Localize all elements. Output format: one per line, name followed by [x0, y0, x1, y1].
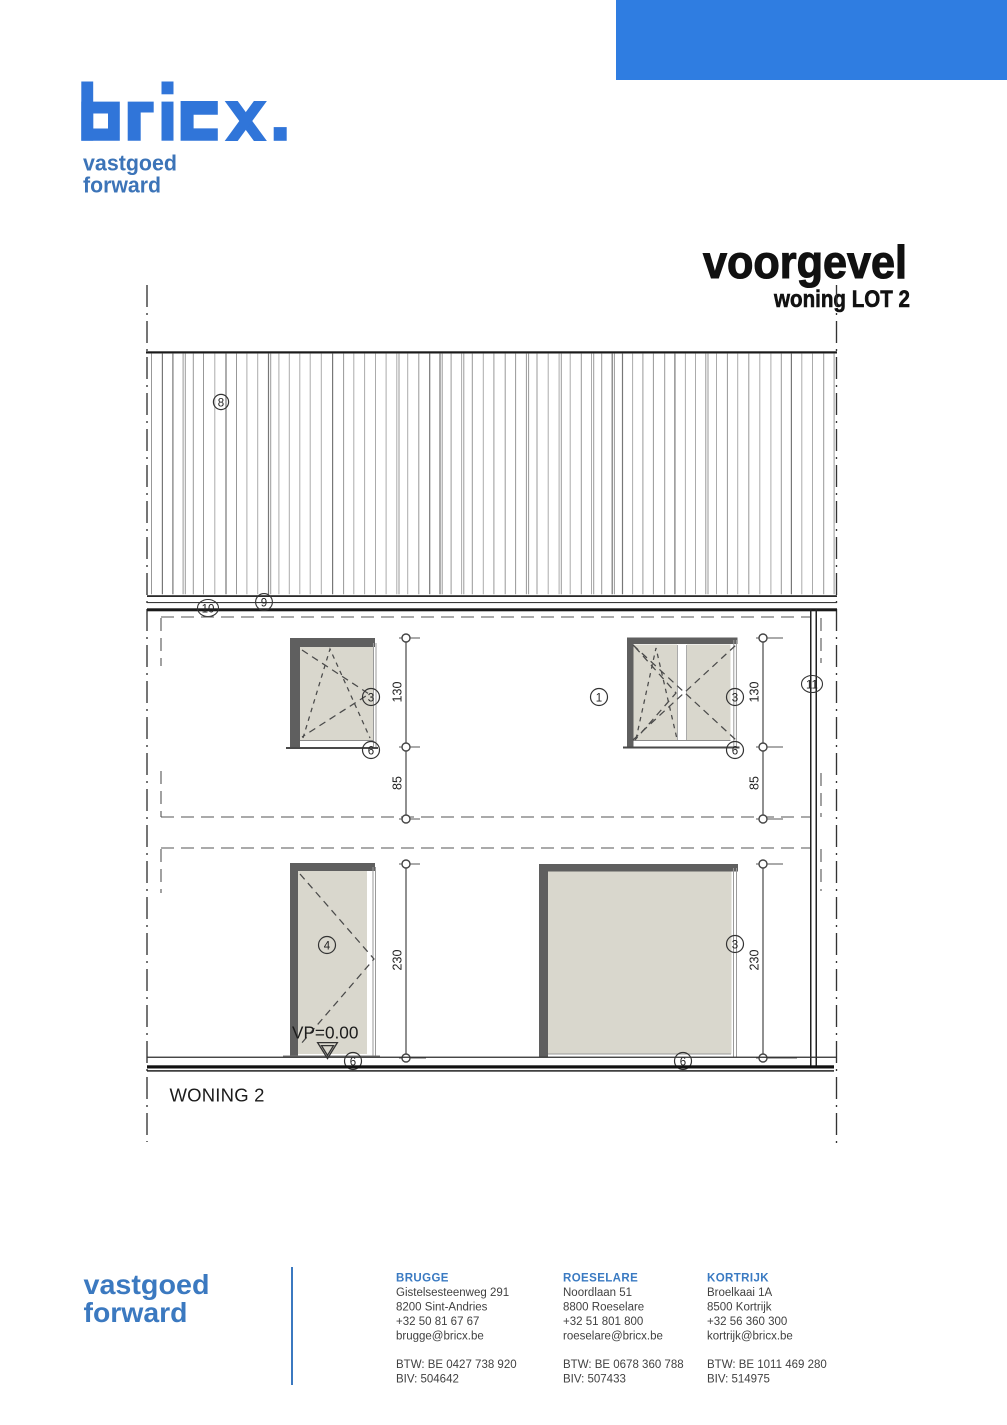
svg-text:Noordlaan 51: Noordlaan 51: [563, 1287, 632, 1299]
svg-text:+32 51 801 800: +32 51 801 800: [563, 1316, 643, 1328]
svg-text:roeselare@bricx.be: roeselare@bricx.be: [563, 1331, 663, 1343]
svg-text:ROESELARE: ROESELARE: [563, 1273, 638, 1285]
svg-text:230: 230: [748, 950, 762, 971]
svg-text:8: 8: [218, 398, 224, 410]
svg-text:4: 4: [324, 941, 331, 953]
svg-text:woning LOT 2: woning LOT 2: [773, 286, 910, 313]
svg-text:3: 3: [732, 940, 738, 952]
svg-text:BIV: 504642: BIV: 504642: [396, 1374, 459, 1386]
svg-text:BIV: 507433: BIV: 507433: [563, 1374, 626, 1386]
svg-text:85: 85: [391, 776, 405, 790]
svg-text:Broelkaai 1A: Broelkaai 1A: [707, 1287, 773, 1299]
svg-text:230: 230: [391, 950, 405, 971]
svg-text:vastgoed: vastgoed: [83, 150, 177, 175]
svg-text:6: 6: [732, 746, 738, 758]
svg-text:Gistelsesteenweg 291: Gistelsesteenweg 291: [396, 1287, 509, 1299]
svg-text:3: 3: [732, 693, 738, 705]
svg-text:9: 9: [261, 598, 267, 610]
svg-text:forward: forward: [83, 173, 161, 198]
svg-text:11: 11: [806, 680, 818, 692]
svg-text:8200 Sint-Andries: 8200 Sint-Andries: [396, 1302, 488, 1314]
svg-text:85: 85: [748, 776, 762, 790]
svg-text:8500 Kortrijk: 8500 Kortrijk: [707, 1302, 772, 1314]
svg-text:brugge@bricx.be: brugge@bricx.be: [396, 1331, 484, 1343]
svg-text:BIV: 514975: BIV: 514975: [707, 1374, 770, 1386]
svg-text:1: 1: [596, 693, 602, 705]
svg-text:kortrijk@bricx.be: kortrijk@bricx.be: [707, 1331, 793, 1343]
svg-text:BTW: BE 0678 360 788: BTW: BE 0678 360 788: [563, 1359, 684, 1371]
svg-text:BRUGGE: BRUGGE: [396, 1273, 449, 1285]
svg-text:vastgoed: vastgoed: [84, 1269, 210, 1300]
svg-text:8800 Roeselare: 8800 Roeselare: [563, 1302, 644, 1314]
svg-text:130: 130: [391, 682, 405, 703]
svg-text:KORTRIJK: KORTRIJK: [707, 1273, 769, 1285]
svg-text:+32 56 360 300: +32 56 360 300: [707, 1316, 787, 1328]
svg-text:BTW: BE 0427 738 920: BTW: BE 0427 738 920: [396, 1359, 517, 1371]
svg-text:3: 3: [368, 693, 374, 705]
svg-text:forward: forward: [84, 1297, 188, 1328]
svg-text:VP=0.00: VP=0.00: [292, 1023, 358, 1043]
svg-text:+32 50 81 67 67: +32 50 81 67 67: [396, 1316, 479, 1328]
svg-text:6: 6: [368, 746, 374, 758]
svg-text:10: 10: [202, 604, 215, 616]
svg-text:130: 130: [748, 682, 762, 703]
svg-text:WONING 2: WONING 2: [170, 1085, 265, 1106]
svg-text:voorgevel: voorgevel: [703, 236, 907, 288]
svg-text:BTW: BE 1011 469 280: BTW: BE 1011 469 280: [707, 1359, 827, 1371]
